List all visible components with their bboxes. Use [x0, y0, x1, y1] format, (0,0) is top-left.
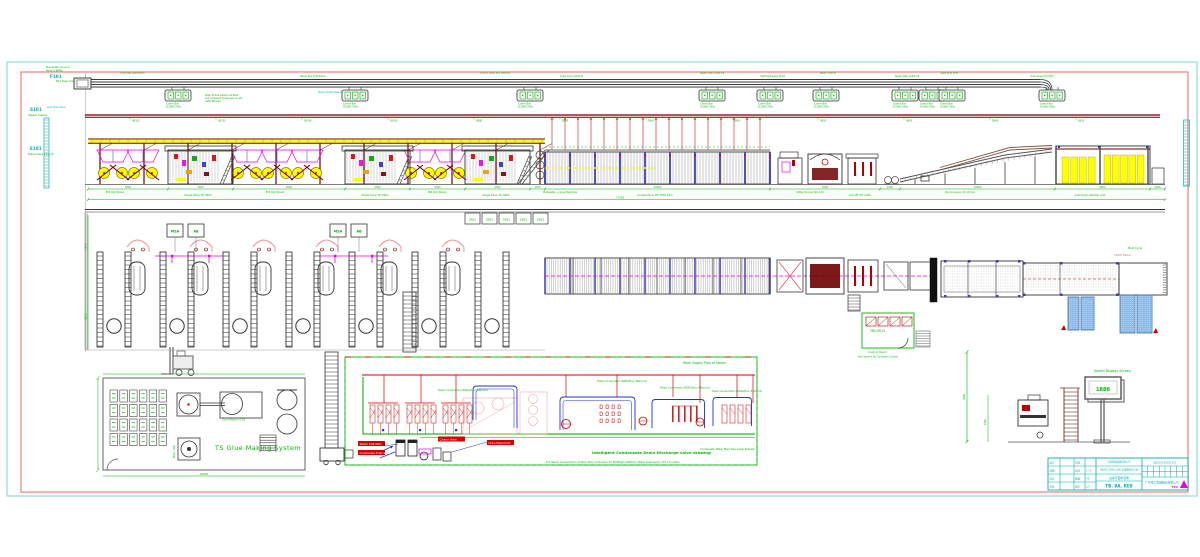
mill-roll-stand-elevation [231, 150, 263, 180]
note: (refer Manual) [205, 100, 221, 103]
title-block-project: WJ250-2500-1600 瓦楞纸板生产线 [1100, 468, 1138, 472]
mill-roll-stand-elevation [434, 150, 466, 180]
busbar-note: Steam Main Outlet 2# [895, 75, 920, 78]
dim-total: 71500 [616, 196, 625, 200]
roll-stand-rail [223, 252, 229, 347]
roll-stand-rail [188, 252, 194, 347]
roll-stand-rail [97, 252, 103, 347]
note: Auto Drain Valve [47, 106, 66, 109]
ground-dimension-chain: 5000250050002500500025001500225004500100… [85, 185, 1166, 202]
roll-stand-rail [475, 252, 481, 347]
box-caption: AC380V 50Hz [166, 106, 182, 109]
stack-areas-plan [1061, 295, 1158, 333]
box-caption: AC380V 50Hz [940, 106, 956, 109]
section-name: Steam Supply [28, 113, 48, 117]
steam-schematic: Work Supply Pipe of SteamSteam Consumpti… [345, 357, 762, 465]
title-block-cell: 校对 [1050, 477, 1056, 481]
ghost-machines [463, 392, 547, 434]
mill-roll-stand-elevation [97, 150, 129, 180]
mill-roll-stand-elevation [261, 150, 293, 180]
single-facer-elevation [342, 146, 413, 184]
dim-value: 1000 [887, 186, 894, 189]
vertical-conveyor-ladders [320, 292, 860, 465]
section-name: Point 0.8MPa [46, 69, 63, 73]
bay-box-label: MSA [334, 230, 343, 234]
title-block-doc-no: WJ250-2500-2-0 [1154, 460, 1177, 464]
machine-label: Single Facer SF-360C [184, 193, 212, 197]
machine-label: Mill Roll Stand [106, 190, 125, 194]
busbar-note: Crane Rail Distribution [120, 72, 145, 75]
busbar-note: Cable Drop 4x35 [940, 72, 959, 75]
dim-value: 2500 [84, 243, 88, 250]
busbar-note: Steam Pipe Distribution [300, 75, 326, 78]
schematic-right-label: Condensate Water Main Pipe Lower Bracket [700, 447, 755, 451]
mill-roll-stand-elevation [404, 150, 436, 180]
busbar-control-box: Control BoxAC380V 50Hz [1039, 87, 1065, 109]
schematic-caption: Intelligent Condensate Drain Discharge v… [592, 450, 711, 455]
title-block-cell: 1:75 [1086, 469, 1092, 473]
title-block-cell: 1/1 [1086, 485, 1090, 489]
machine-label: Single Facer SF-360C [482, 193, 510, 197]
loop-label: Steam Consumption 900KG/Hour 9Bar/cm2 [597, 380, 647, 383]
section-name: Pneumatic Source [46, 65, 70, 69]
bay-box-label: MSA [171, 230, 180, 234]
pipe-dim: DN100 [390, 120, 398, 123]
roll-stand-rail [377, 252, 383, 347]
control-room-label: Control Room [868, 350, 887, 354]
section-code: S101 [30, 107, 42, 112]
dim-value: 4500 [822, 186, 829, 189]
dim-value: 9500 [1099, 186, 1106, 189]
bay-box-label: AB [356, 230, 362, 234]
box-caption: AC380V 50Hz [700, 106, 716, 109]
double-facer-plan [544, 258, 935, 294]
pipe-dim: DN100 [304, 120, 312, 123]
heater-coil-bank [405, 403, 436, 434]
roll-stand-rail [440, 252, 446, 347]
control-room-plan: TRC0912Control RoomAny Section for Condi… [858, 313, 930, 359]
dim-value: 2500 [197, 186, 204, 189]
roll-stands [97, 150, 466, 180]
bay-box-label: AB [193, 230, 199, 234]
drawing-sheet[interactable]: Pneumatic SourcePoint 0.8MPaF101S101Stea… [0, 0, 1200, 557]
machine-label: Slitter Scorer NC-120 [796, 190, 824, 194]
busbar-control-box: Control BoxAC380V 50Hz [165, 87, 191, 109]
busbar-note: Lighting Busway 3P+N [760, 75, 785, 78]
title-block-cell: A0 [1086, 477, 1090, 481]
mill-roll-stand-elevation [291, 150, 323, 180]
dim-value: 1500 [984, 419, 987, 425]
machine-label: Cut Off HQ-120S [849, 193, 871, 197]
glue-room-title: TS Glue Making System [214, 444, 301, 452]
roll-stand-rail [412, 252, 418, 347]
pipe-dim: DN50 [820, 120, 827, 123]
title-block-cell: 制图 [1050, 469, 1056, 473]
schematic-callout: Condensate Drain Main [360, 451, 391, 455]
loop-label: Steam Consumption 800KG/Hour 8Bar/cm2 [660, 387, 710, 390]
dim-value: 15500 [974, 186, 982, 189]
mixer-label: Mixer 3kW [173, 445, 176, 458]
dim-value: 5000 [286, 186, 293, 189]
pipe-dim: DN40 [992, 120, 999, 123]
pipe-dim: DN80 [476, 120, 483, 123]
heater-coil-bank [368, 403, 399, 434]
title-block-cell: 图幅 [1075, 477, 1081, 481]
schematic-callout: Drain Equipment [489, 441, 511, 445]
box-caption: AC380V 50Hz [518, 106, 534, 109]
single-facer-elevation [165, 146, 236, 184]
valve-unit-label: DN25 [537, 218, 545, 222]
forklift-symbol [161, 347, 194, 376]
machine-label: Mill Roll Stand [428, 190, 447, 194]
roll-stand-rail [503, 252, 509, 347]
speed-screen-label: Speed Display Screen [1094, 369, 1131, 373]
title-block-company: 包装机械设备有限公司 [1108, 460, 1132, 464]
schematic-subcaption: Full Steam Consumption at Work Duty prod… [546, 460, 680, 464]
pipe-dim: DN50 [906, 120, 913, 123]
roll-stand-rail [125, 252, 131, 347]
roll-stand-rail [160, 252, 166, 347]
pipe-dim: DN125 [132, 120, 140, 123]
knife-section-plan [777, 258, 937, 302]
loop-label: Steam Consumption 900KG/Hour 9Bar/cm2 [438, 389, 488, 392]
heater-coil-bank [441, 403, 472, 434]
schematic-title: Work Supply Pipe of Steam [683, 361, 726, 365]
section-name: Equipment Layout [28, 152, 54, 156]
title-block-cell: 日期 [1075, 461, 1081, 465]
title-block-cell: 审核 [1050, 485, 1056, 489]
speed-display-value: 1888 [1096, 387, 1110, 393]
section-code: F101 [50, 74, 62, 79]
valve-unit-label: DN25 [503, 218, 511, 222]
section-code: E101 [30, 146, 42, 151]
box-caption: AC380V 50Hz [343, 106, 359, 109]
cad-drawing-canvas: Pneumatic SourcePoint 0.8MPaF101S101Stea… [0, 0, 1200, 557]
loop-label: Steam Consumption 600KG/Hour 8Bar/cm2 [712, 390, 762, 393]
slitter-cutoff-elevation [778, 152, 899, 184]
note: Main Power Inlet [56, 80, 74, 83]
plan-view: 25005500MSAABMSAABDN25DN25DN25DN25DN25 [84, 210, 1166, 351]
busbar-control-box: Control BoxAC380V 50Hz [939, 87, 965, 109]
control-room-sublabel: Any Section for Condition Control [858, 356, 898, 359]
dim-value: 1500 [534, 186, 541, 189]
roll-stand-rail [251, 252, 257, 347]
busbar-control-box: Control BoxAC380V 50Hz [813, 87, 839, 109]
speed-screen-detail: 300015001888Speed Display Screen [963, 350, 1131, 443]
condensate-loops [473, 386, 752, 430]
dim-value: 5000 [434, 186, 441, 189]
glue-making-room: 20000Corn Starch 2.5tMixer 3kWTS Glue Ma… [97, 374, 306, 476]
machine-label: Up Conveyor 15 m/min [945, 190, 975, 194]
pipe-dim: DN125 [218, 120, 226, 123]
title-block-cell: 设计 [1050, 461, 1056, 465]
title-block-cell: 比例 [1075, 469, 1081, 473]
dim-value: 2500 [374, 186, 381, 189]
machine-label: Single Facer SF-360C [361, 193, 389, 197]
valve-unit-label: DN25 [469, 218, 477, 222]
steam-main-pipe: DN125DN125DN100DN100DN80DN80DN65DN65DN50… [85, 115, 1160, 123]
splicer-label-boxes: MSAAB [318, 224, 388, 263]
busbar-control-box: Control BoxAC380V 50Hz [342, 87, 368, 109]
title-block-company-full: 广东重工机械制造有限公司 [1145, 481, 1179, 485]
dim-value: 2500 [494, 186, 501, 189]
plan-right-label: Mold Cycle [1128, 246, 1143, 250]
roll-stand-rail [314, 252, 320, 347]
box-caption: AC380V 50Hz [893, 106, 909, 109]
dim-value: 20000 [200, 472, 209, 476]
pipe-dim: DN65 [734, 120, 741, 123]
box-caption: AC380V 50Hz [814, 106, 830, 109]
control-room-code: TRC0912 [869, 329, 885, 333]
drain-equipment: Steam Inlet MainCondensate Drain MainDra… [358, 437, 514, 462]
dim-value: 22500 [654, 186, 662, 189]
dim-value: 5500 [84, 313, 88, 320]
splicer-label-boxes: MSAAB [155, 224, 225, 263]
busbar-note: Crane Power End Box [1030, 75, 1054, 78]
busbar-control-box: Control BoxAC380V 50Hz [699, 87, 725, 109]
double-facer-elevation [544, 117, 771, 184]
logo-text: TSV [1171, 485, 1178, 489]
ramp-conveyors [900, 146, 1052, 185]
busbar-note: Cable Trunk 100x100 [560, 75, 584, 78]
valve-unit-label: DN25 [486, 218, 494, 222]
machine-label: Double Facer BF-2500 18m [637, 193, 673, 197]
busbar-note: Control Cable Tray 200x100 [480, 72, 511, 75]
mill-roll-stand-elevation [127, 150, 159, 180]
dim-value: 3000 [963, 393, 966, 400]
box-caption: AC380V 50Hz [1040, 106, 1056, 109]
conveyor-label: 1600 52pm [1114, 253, 1131, 257]
title-block: 设计日期制图比例1:75校对图幅A0审核张次1/1包装机械设备有限公司WJ250… [1048, 458, 1188, 490]
roll-stand-rail [349, 252, 355, 347]
machine-label: Preheater + Glue Machine [543, 190, 578, 194]
pipe-dim: DN32 [1078, 120, 1085, 123]
roll-stand-rail [286, 252, 292, 347]
busbar-control-box: Control BoxAC380V 50Hz [757, 87, 783, 109]
tank-label: Corn Starch 2.5t [222, 418, 246, 422]
schematic-callout: Control Valve [440, 437, 458, 441]
pipe-dim: DN65 [648, 120, 655, 123]
exit-conveyors-plan: 1600 52pmMold Cycle [941, 246, 1167, 298]
machine-label: Auto Down Stacker Unit [1075, 193, 1106, 197]
busbar-rail: Control BoxAC380V 50HzControl BoxAC380V … [74, 72, 1065, 109]
title-block-drawing-code: TB. 8A. KE8 [1105, 484, 1132, 489]
down-stacker [1056, 146, 1164, 184]
machine-label: Mill Roll Stand [266, 190, 285, 194]
dim-value: 1500 [1154, 186, 1161, 189]
title-block-cell: 张次 [1075, 485, 1081, 489]
valve-unit-label: DN25 [520, 218, 528, 222]
box-caption: AC380V 50Hz [920, 106, 936, 109]
busbar-note: Maint. Hoist 2t [820, 72, 836, 75]
dim-value: 5000 [125, 186, 132, 189]
busbar-control-box: Control BoxAC380V 50Hz [892, 87, 918, 109]
box-caption: AC380V 50Hz [758, 106, 774, 109]
busbar-control-box: Control BoxAC380V 50Hz [517, 87, 543, 109]
schematic-callout: Steam Inlet Main [360, 442, 382, 446]
title-block-drawing-title: 设备平面布置图 [1109, 476, 1129, 480]
busbar-note: Steam Main Outlet 1# [700, 72, 725, 75]
